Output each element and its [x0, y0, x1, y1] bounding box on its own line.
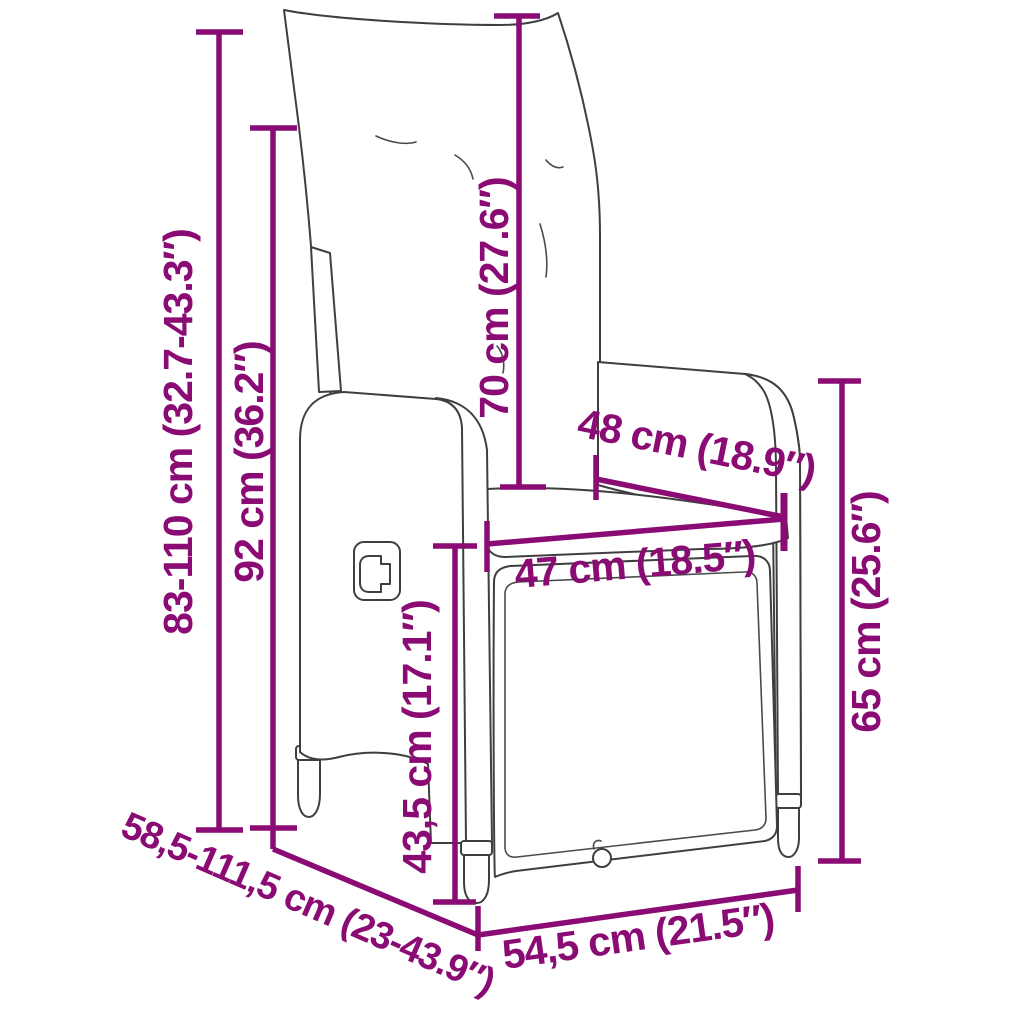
- front-left-foot: [461, 841, 492, 903]
- right-foot: [776, 794, 801, 857]
- dimension-diagram: 83-110 cm (32.7-43.3″) 92 cm (36.2″) 70 …: [0, 0, 1024, 1024]
- recline-handle: [354, 542, 400, 600]
- dimension-label-seat-height: 43,5 cm (17.1″): [394, 600, 440, 874]
- dimension-label-back-cushion-height: 70 cm (27.6″): [471, 177, 517, 418]
- dimension-label-backrest-height-range: 83-110 cm (32.7-43.3″): [155, 229, 201, 635]
- chair-diagram-canvas: 83-110 cm (32.7-43.3″) 92 cm (36.2″) 70 …: [0, 0, 1024, 1024]
- dimension-label-frame-height: 92 cm (36.2″): [226, 341, 272, 582]
- dimension-label-base-width: 54,5 cm (21.5″): [499, 894, 776, 978]
- left-side-panel: [300, 392, 466, 843]
- footrest-panel: [494, 556, 777, 877]
- dimension-label-armrest-height: 65 cm (25.6″): [843, 491, 889, 732]
